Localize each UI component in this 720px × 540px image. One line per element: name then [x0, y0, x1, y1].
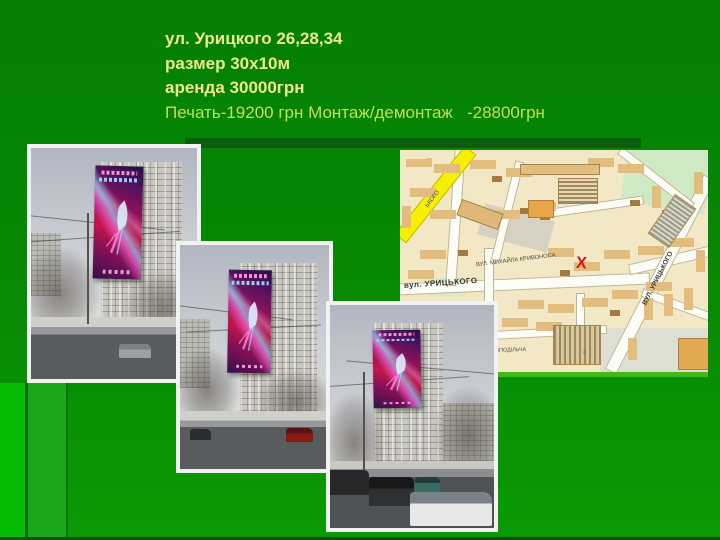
- banner-footer-text: [383, 401, 412, 404]
- left-accent-strip: [0, 383, 25, 537]
- red-x-marker: X: [575, 254, 587, 274]
- billboard-photo-3: [326, 301, 498, 532]
- rocket-graphic: [99, 191, 136, 260]
- photo-scene: [180, 245, 329, 469]
- car: [369, 477, 413, 506]
- map-building: [678, 338, 708, 370]
- print-install-line: Печать-19200 грн Монтаж/демонтаж -28800г…: [165, 101, 545, 126]
- left-accent-strip-2: [28, 383, 66, 537]
- banner-headline-text: [378, 332, 414, 336]
- map-building: [520, 164, 600, 175]
- billboard-banner: [372, 329, 421, 408]
- rent-line: аренда 30000грн: [165, 76, 545, 101]
- map-building-cluster: [400, 150, 410, 156]
- map-highlighted-road: [400, 150, 476, 243]
- map-building-hatched: [553, 325, 601, 365]
- car: [415, 477, 440, 493]
- banner-subline-text: [232, 281, 268, 285]
- banner-headline-text: [234, 273, 267, 278]
- billboard-banner: [227, 269, 272, 373]
- map-building-hatched: [558, 178, 598, 204]
- car: [410, 492, 492, 525]
- car: [286, 428, 313, 443]
- billboard-photo-2: [176, 241, 333, 473]
- street-ground: [31, 317, 197, 379]
- banner-subline-text: [376, 338, 416, 341]
- street-light-pole: [363, 372, 365, 472]
- car: [119, 344, 151, 358]
- photo-scene: [330, 305, 494, 528]
- address-line: ул. Урицкого 26,28,34: [165, 27, 545, 52]
- rocket-graphic: [378, 346, 414, 393]
- presentation-slide: ул. Урицкого 26,28,34 размер 30х10м арен…: [0, 0, 720, 540]
- car: [327, 470, 370, 495]
- banner-footer-text: [236, 364, 262, 368]
- photo-scene: [31, 148, 197, 379]
- left-accent-divider-2: [66, 383, 68, 537]
- building-number-label: 2: [583, 348, 586, 354]
- street-light-pole: [87, 213, 89, 324]
- rocket-graphic: [232, 292, 265, 354]
- billboard-photo-1: [27, 144, 201, 383]
- shadow-band: [185, 138, 641, 148]
- size-line: размер 30х10м: [165, 52, 545, 77]
- map-building: [528, 200, 554, 218]
- title-block: ул. Урицкого 26,28,34 размер 30х10м арен…: [165, 27, 545, 125]
- car: [190, 429, 211, 440]
- billboard-banner: [93, 166, 144, 280]
